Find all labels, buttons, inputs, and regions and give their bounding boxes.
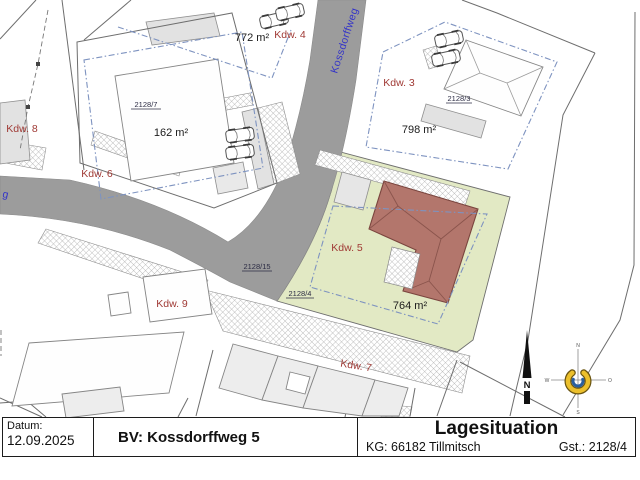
plot-label-kdw6: Kdw. 6	[81, 168, 113, 180]
area-label-162: 162 m²	[154, 127, 189, 139]
plot-label-kdw9: Kdw. 9	[156, 298, 188, 310]
date-value: 12.09.2025	[7, 433, 93, 448]
parcel-label-2128-4: 2128/4	[289, 289, 312, 298]
plot-label-kdw4: Kdw. 4	[274, 29, 306, 41]
area-label-764: 764 m²	[393, 300, 428, 312]
project-cell: BV: Kossdorffweg 5	[94, 418, 358, 456]
building-2128-7	[115, 59, 234, 181]
parcel-label-2128-3: 2128/3	[448, 94, 471, 103]
plot-label-kdw8: Kdw. 8	[6, 123, 38, 135]
title-block-date-cell: Datum: 12.09.2025	[3, 418, 94, 456]
site-plan-map: Kdw. 8 Kdw. 6 Kdw. 4 Kdw. 3 Kdw. 5 Kdw. …	[0, 0, 640, 480]
pad-kdw6-bottom	[213, 162, 248, 194]
cadastral-municipality: KG: 66182 Tillmitsch	[366, 440, 481, 454]
parcel-label-2128-7: 2128/7	[135, 100, 158, 109]
compass-east-label: O	[608, 378, 612, 384]
building-kdw9-small	[108, 292, 131, 316]
parcel-number: Gst.: 2128/4	[559, 440, 627, 454]
compass-north-label: N	[576, 343, 580, 349]
parcel-label-2128-15: 2128/15	[243, 262, 270, 271]
area-label-798: 798 m²	[402, 124, 437, 136]
title-block: Datum: 12.09.2025 BV: Kossdorffweg 5 Lag…	[2, 417, 636, 457]
project-label: BV: Kossdorffweg 5	[118, 429, 260, 446]
plot-label-kdw5: Kdw. 5	[331, 242, 363, 254]
building-kdw9-mid	[143, 269, 212, 322]
compass-west-label: W	[545, 378, 550, 384]
title-cell: Lagesituation KG: 66182 Tillmitsch Gst.:…	[358, 418, 635, 456]
plot-label-kdw3: Kdw. 3	[383, 77, 415, 89]
north-arrow-label: N	[524, 380, 531, 391]
date-label: Datum:	[7, 420, 93, 432]
drawing-title: Lagesituation	[358, 419, 635, 439]
site-plan-viewer: Kdw. 8 Kdw. 6 Kdw. 4 Kdw. 3 Kdw. 5 Kdw. …	[0, 0, 640, 480]
area-label-772: 772 m²	[235, 32, 270, 44]
